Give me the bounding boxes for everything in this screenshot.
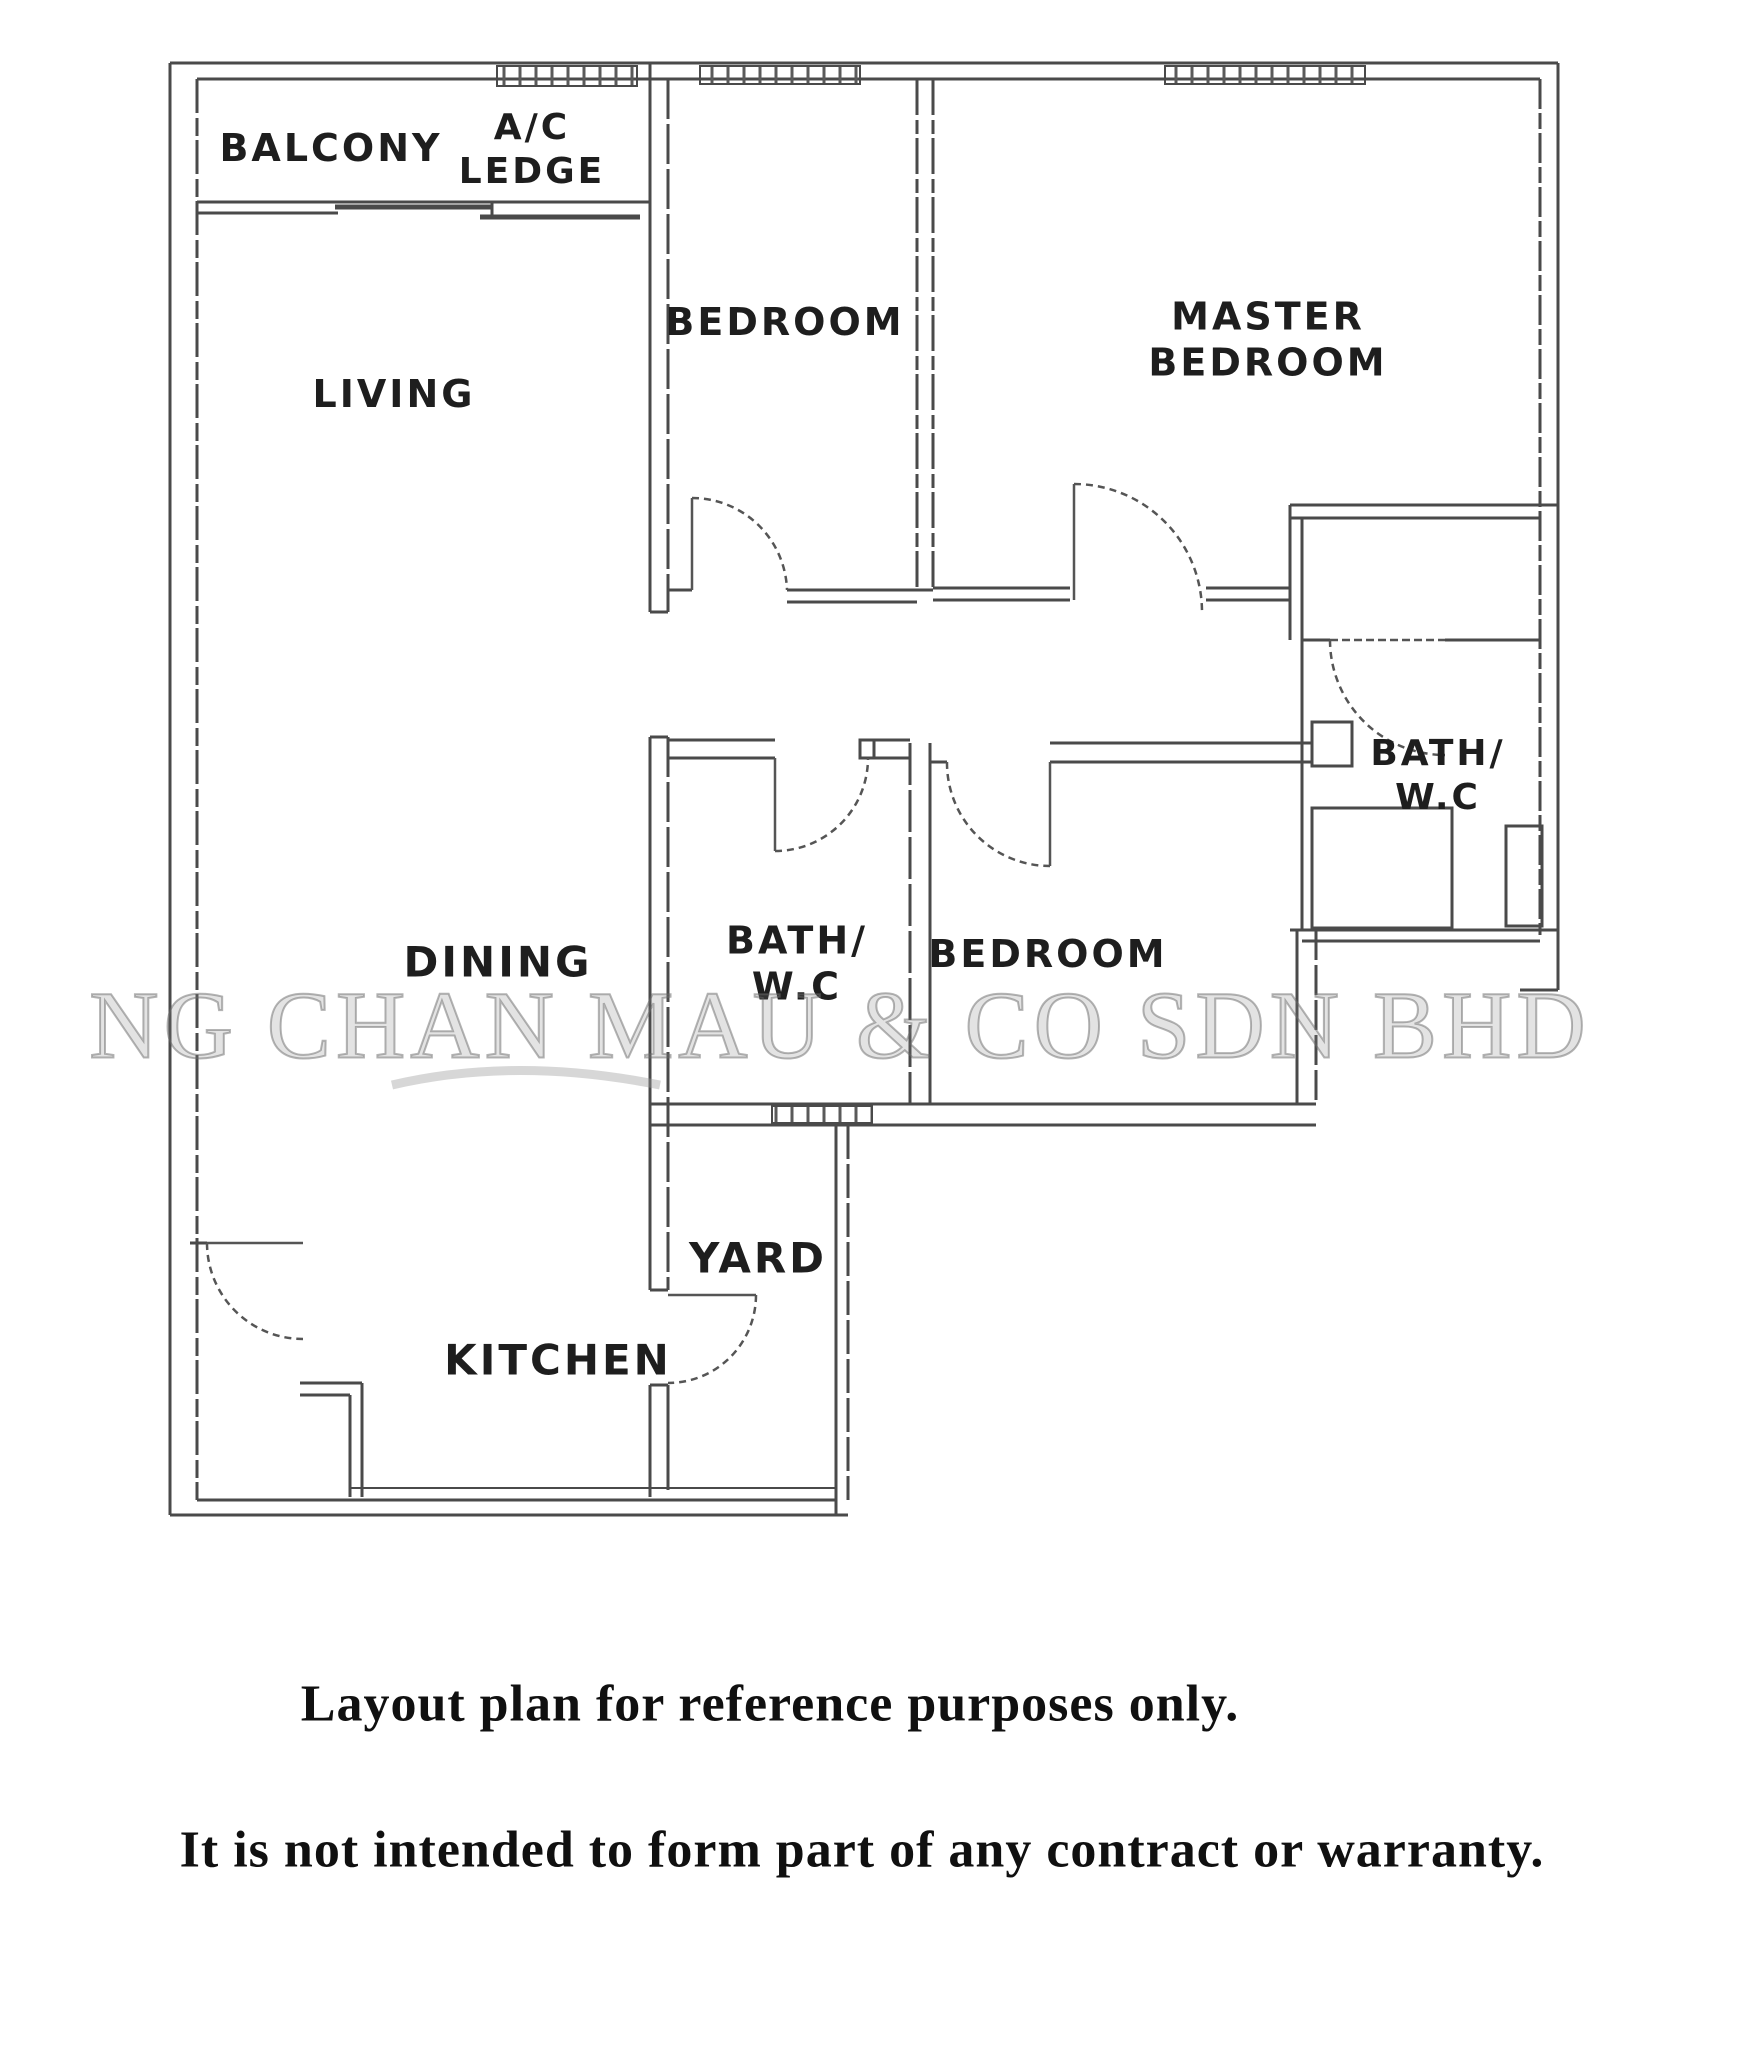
- room-label-master-line1: MASTER: [1148, 294, 1387, 340]
- room-label-bedroom-top: BEDROOM: [665, 299, 904, 345]
- watermark-text: NG CHAN MAU & CO SDN BHD: [89, 970, 1590, 1081]
- room-label-bath-center-line1: BATH/: [726, 918, 868, 964]
- room-label-master-bedroom: MASTERBEDROOM: [1148, 294, 1387, 387]
- floor-plan-page: BALCONY A/CLEDGE LIVING BEDROOM MASTERBE…: [0, 0, 1747, 2048]
- room-label-ac-ledge-line1: A/C: [459, 106, 606, 150]
- room-label-ac-ledge: A/CLEDGE: [459, 106, 606, 194]
- room-label-yard: YARD: [689, 1232, 827, 1283]
- bath-fixtures: [1312, 808, 1542, 928]
- room-label-ac-ledge-line2: LEDGE: [459, 150, 606, 194]
- room-label-bath-master-line2: W.C: [1370, 776, 1505, 820]
- room-label-master-line2: BEDROOM: [1148, 340, 1387, 386]
- room-label-balcony: BALCONY: [219, 125, 442, 171]
- room-label-kitchen: KITCHEN: [444, 1334, 672, 1385]
- room-label-bath-master-line1: BATH/: [1370, 732, 1505, 776]
- room-label-living: LIVING: [313, 371, 476, 417]
- room-label-bath-master: BATH/W.C: [1370, 732, 1505, 820]
- caption-line-2: It is not intended to form part of any c…: [180, 1821, 1545, 1880]
- caption-line-1: Layout plan for reference purposes only.: [301, 1675, 1239, 1734]
